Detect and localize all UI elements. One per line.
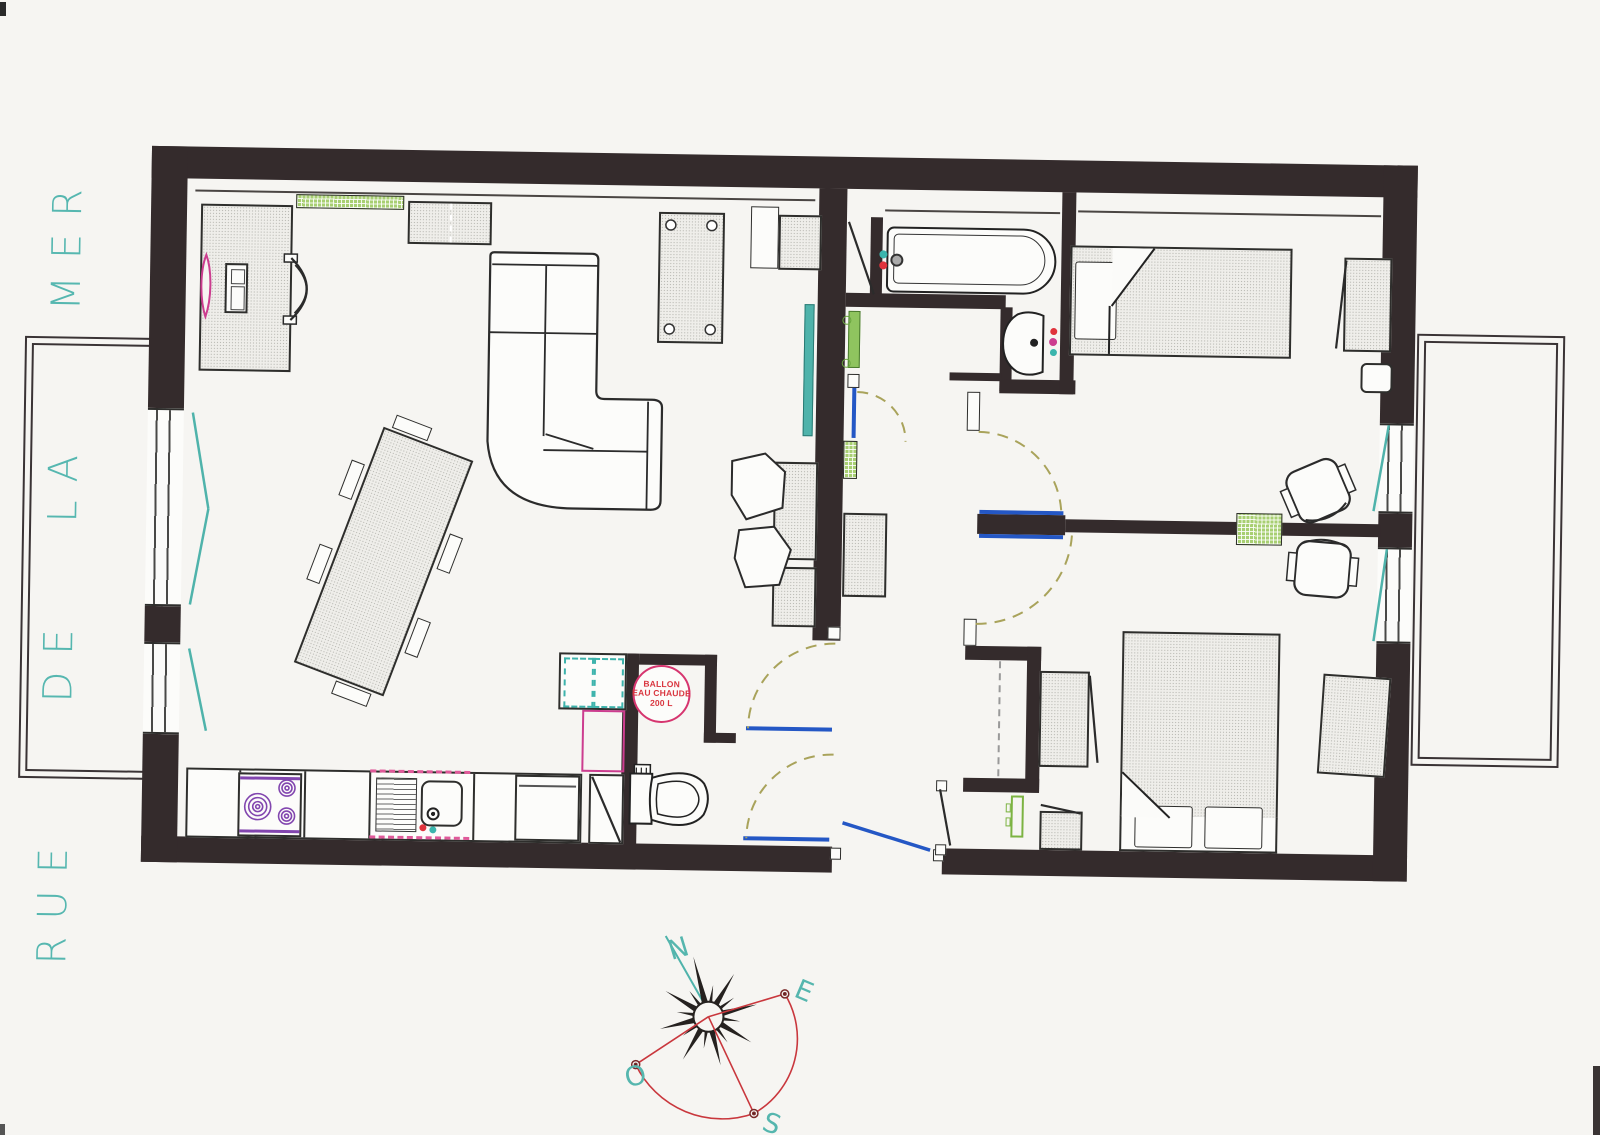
toilet (629, 764, 708, 825)
plan-sheet: MER LA DE RUE (0, 0, 1600, 1135)
desk-lamp (201, 255, 211, 317)
desk-chair-bedroom1 (1275, 452, 1361, 531)
window-casement-lines (188, 407, 1389, 750)
vector-overlay: N E O S (0, 0, 1600, 1135)
door-swing-arcs (746, 390, 1074, 843)
side-table-feet (664, 220, 717, 335)
armchair (730, 453, 792, 588)
blanket-fold (1102, 248, 1179, 818)
compass-letter-n: N (664, 931, 692, 967)
office-chair (283, 254, 307, 324)
washbasin (1003, 312, 1044, 375)
floor-plan-page: MER LA DE RUE (0, 0, 1600, 1135)
scan-artifact (1593, 1066, 1600, 1135)
compass-letter-o: O (621, 1059, 649, 1094)
compass-rose: N E O S (620, 930, 818, 1135)
compass-letter-e: E (790, 974, 818, 1009)
desk-chair-bedroom2 (1285, 537, 1360, 599)
closet-dashed-line (998, 661, 1000, 776)
door-leaf-lines (591, 218, 1347, 854)
front-door-leaf (842, 823, 930, 850)
compass-letter-s: S (758, 1107, 784, 1135)
cooktop-burners (244, 779, 295, 824)
sectional-sofa (486, 252, 664, 510)
